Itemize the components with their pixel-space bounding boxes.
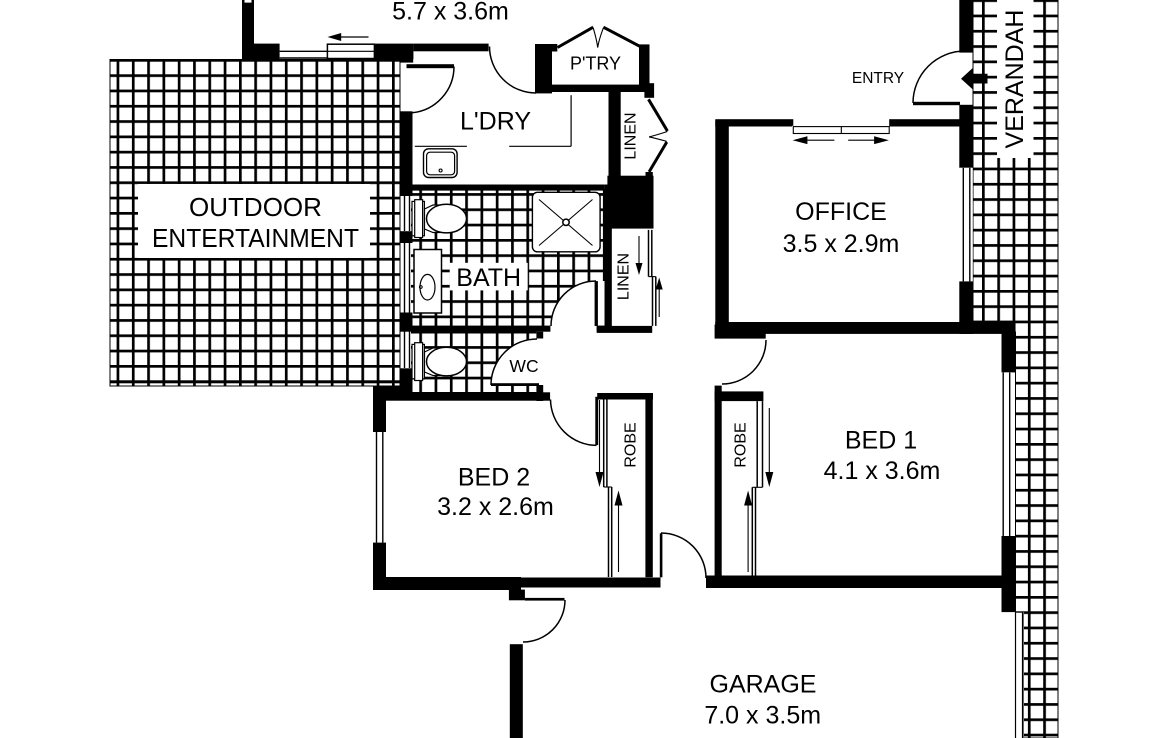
svg-text:WC: WC — [509, 356, 538, 376]
svg-text:3.2 x 2.6m: 3.2 x 2.6m — [437, 493, 554, 521]
svg-text:LINEN: LINEN — [616, 253, 633, 300]
svg-text:4.1 x 3.6m: 4.1 x 3.6m — [824, 457, 941, 485]
svg-text:P'TRY: P'TRY — [570, 54, 621, 74]
svg-text:BED 1: BED 1 — [845, 427, 917, 455]
svg-text:3.5 x 2.9m: 3.5 x 2.9m — [783, 230, 900, 258]
svg-text:GARAGE: GARAGE — [710, 671, 817, 699]
svg-text:BATH: BATH — [456, 264, 521, 292]
svg-text:ENTRY: ENTRY — [852, 70, 904, 87]
svg-text:BED 2: BED 2 — [458, 464, 530, 492]
svg-text:LINEN: LINEN — [623, 112, 640, 159]
svg-text:OFFICE: OFFICE — [795, 198, 887, 226]
svg-text:ENTERTAINMENT: ENTERTAINMENT — [152, 223, 359, 253]
svg-text:L'DRY: L'DRY — [460, 108, 531, 136]
svg-text:OUTDOOR: OUTDOOR — [189, 192, 322, 222]
svg-text:ROBE: ROBE — [623, 422, 640, 467]
svg-text:VERANDAH: VERANDAH — [1001, 10, 1029, 149]
svg-text:7.0 x 3.5m: 7.0 x 3.5m — [704, 702, 821, 730]
svg-text:5.7 x 3.6m: 5.7 x 3.6m — [392, 0, 509, 26]
svg-text:ROBE: ROBE — [733, 422, 750, 467]
